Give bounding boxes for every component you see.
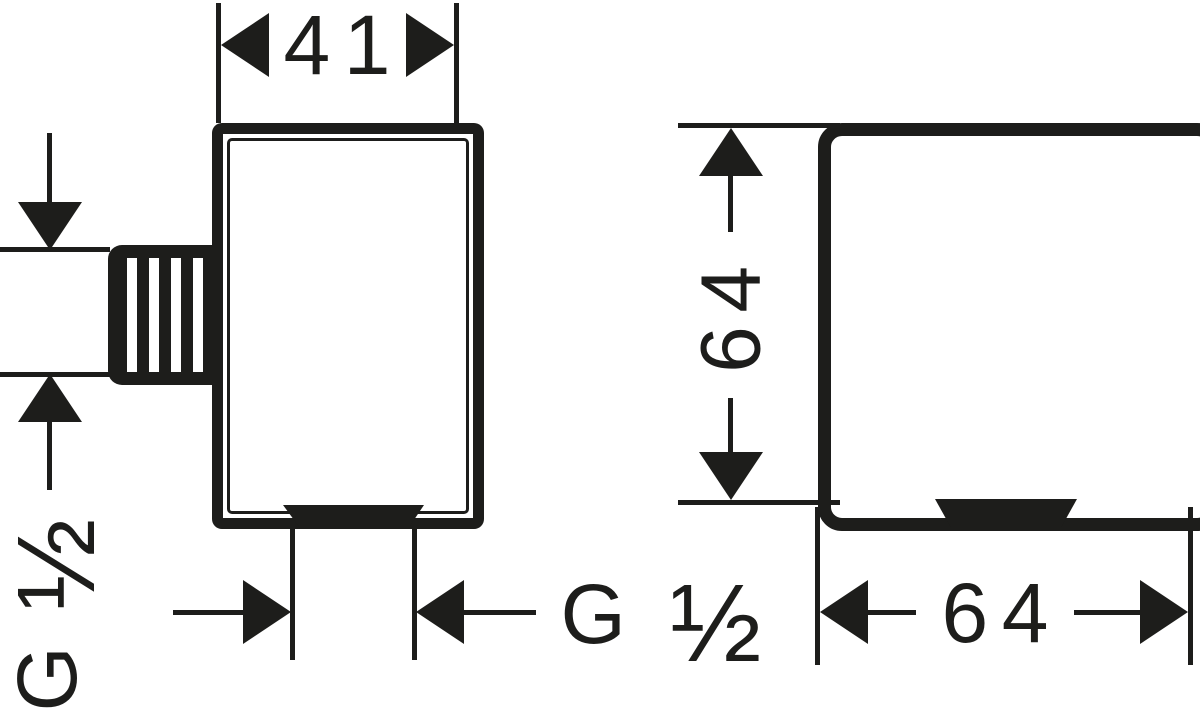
front-width-dim-arrow-left-icon [820,580,868,644]
thread-dim-arrow-up-icon [18,374,82,422]
outlet-dim-line-left [173,610,243,615]
thread-dim-line-top [47,133,52,203]
front-width-dim-line-left [868,610,916,615]
thread-dim-arrow-down-icon [18,202,82,250]
side-view-body [212,123,484,529]
side-view-bottom-outlet [283,505,424,528]
width-dim-label: 41 [252,3,429,87]
outlet-dim-line-right [464,610,536,615]
front-width-dim-extension-line-right [1188,507,1193,665]
front-view-faceplate [818,123,1200,531]
outlet-dim-arrow-left-icon [416,580,464,644]
outlet-size-label: G ½ [555,568,767,660]
front-width-dim-line-right [1074,610,1140,615]
outlet-size-prefix: G [560,572,625,656]
thread-groove-icon [149,258,159,372]
front-view-bottom-outlet [935,499,1077,527]
front-width-dim-label: 64 [910,571,1087,655]
height-dim-extension-line-bottom [678,500,840,505]
height-dim-arrow-up-icon [699,128,763,176]
side-view-body-inner-edge [227,138,469,514]
outlet-dim-arrow-right-icon [243,580,291,644]
height-dim-arrow-down-icon [699,452,763,500]
height-dim-line-bottom [728,398,733,454]
height-dim-label: 64 [680,233,780,400]
thread-groove-icon [127,258,137,372]
side-view-thread-connector [108,245,212,385]
thread-size-label: G ½ [0,523,99,707]
front-width-dim-arrow-right-icon [1140,580,1188,644]
thread-groove-icon [171,258,181,372]
width-dim-extension-line-right [454,3,459,123]
height-dim-line-top [728,176,733,232]
thread-dim-extension-line-top [0,247,110,252]
dimension-drawing: 41 G ½ G ½ 64 [0,0,1200,716]
thread-groove-icon [193,258,203,372]
thread-dim-line-bottom [47,422,52,490]
thread-size-fraction: ½ [2,518,112,610]
thread-size-prefix: G [5,646,89,711]
outlet-size-fraction: ½ [670,569,762,679]
